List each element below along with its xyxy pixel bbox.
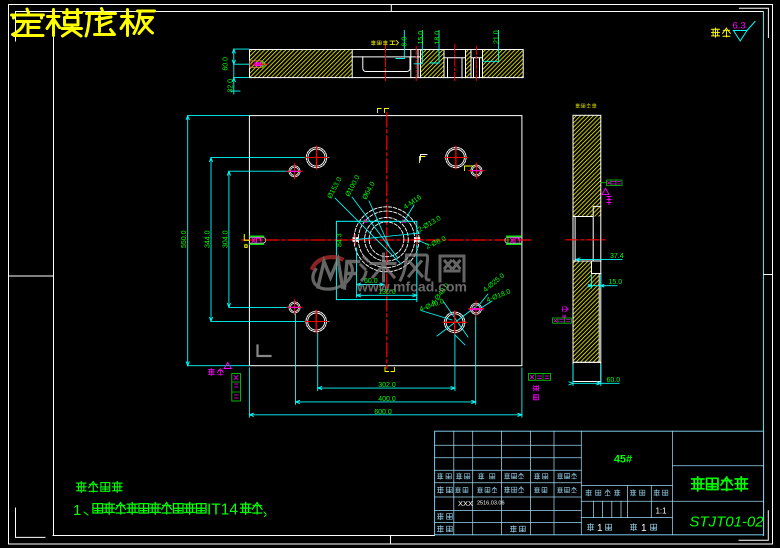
svg-text:IT14: IT14 [207,502,238,519]
svg-text:1: 1 [73,502,81,519]
svg-text:XXX: XXX [458,499,473,508]
svg-text:15.0: 15.0 [609,279,623,286]
svg-text:18.0: 18.0 [435,31,442,45]
svg-text:550.0: 550.0 [181,230,188,248]
svg-text:84.3: 84.3 [337,233,344,247]
svg-text:1: 1 [597,523,603,534]
svg-text:www.mfcad.com: www.mfcad.com [356,279,467,295]
svg-text:1:1: 1:1 [655,507,667,516]
svg-text:302.0: 302.0 [378,382,396,389]
svg-text:45#: 45# [614,454,632,466]
svg-text:6.3: 6.3 [733,21,746,32]
svg-text:344.0: 344.0 [205,230,212,248]
svg-text:600.0: 600.0 [374,409,392,416]
svg-text:21.0: 21.0 [494,30,501,44]
svg-text:60.0: 60.0 [223,57,230,71]
svg-text:400.0: 400.0 [378,396,396,403]
svg-text:37.4: 37.4 [610,253,624,260]
svg-text:32.0: 32.0 [228,79,235,93]
svg-text:1: 1 [641,523,647,534]
svg-text:15.0: 15.0 [418,31,425,45]
svg-text:304.0: 304.0 [223,230,230,248]
svg-text:2516.03.06: 2516.03.06 [477,501,505,507]
svg-text:8.0: 8.0 [401,37,408,47]
svg-text:STJT01-02: STJT01-02 [689,514,764,531]
svg-text:60.0: 60.0 [607,377,621,384]
